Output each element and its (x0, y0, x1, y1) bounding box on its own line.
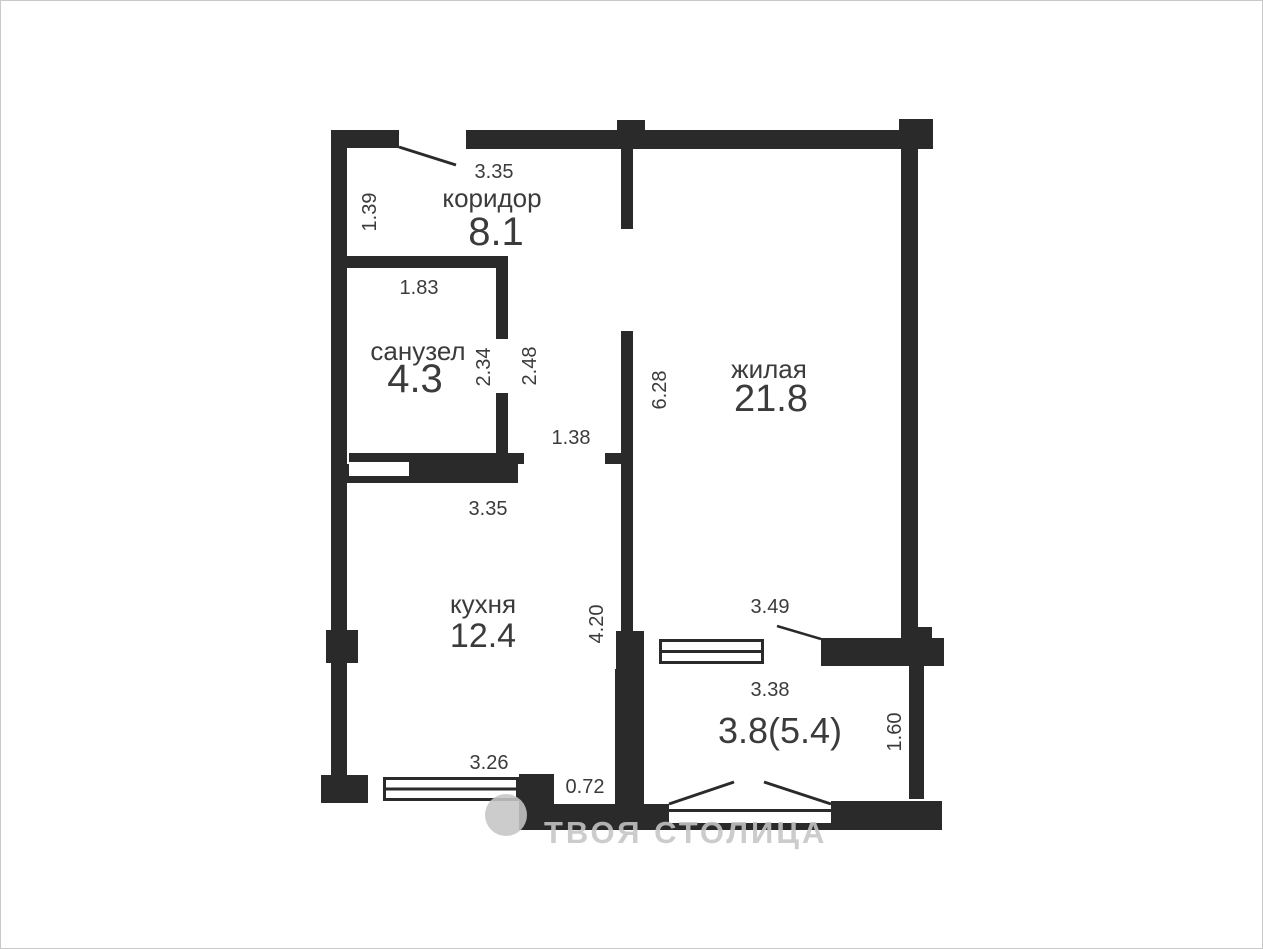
floor-plan-canvas: коридор 8.1 санузел 4.3 жилая 21.8 кухня… (0, 0, 1263, 949)
dim-opening-width: 1.38 (552, 428, 591, 448)
dim-corridor-width: 3.35 (475, 162, 514, 182)
dim-living-width: 3.49 (751, 597, 790, 617)
dim-balcony-door-width: 0.72 (566, 777, 605, 797)
room-area-balcony: 3.8(5.4) (718, 713, 842, 749)
room-name-corridor: коридор (442, 185, 541, 211)
dim-bathroom-height: 2.34 (474, 348, 494, 387)
dim-kitchen-width: 3.35 (469, 499, 508, 519)
room-area-corridor: 8.1 (468, 212, 524, 252)
dim-corridor-height: 1.39 (360, 193, 380, 232)
room-area-bathroom: 4.3 (387, 359, 443, 399)
dim-kitchen-window-width: 3.26 (470, 753, 509, 773)
dim-balcony-width: 3.38 (751, 680, 790, 700)
dim-living-height: 6.28 (650, 371, 670, 410)
label-layer: коридор 8.1 санузел 4.3 жилая 21.8 кухня… (1, 1, 1262, 948)
watermark-logo-icon (485, 794, 527, 836)
watermark-text: ТВОЯ СТОЛИЦА (544, 815, 827, 851)
room-name-kitchen: кухня (450, 591, 516, 617)
dim-bathroom-width: 1.83 (400, 278, 439, 298)
dim-kitchen-height: 4.20 (587, 605, 607, 644)
room-area-living: 21.8 (734, 380, 808, 418)
room-area-kitchen: 12.4 (450, 619, 516, 653)
dim-balcony-height: 1.60 (885, 713, 905, 752)
dim-corridor-strip-height: 2.48 (520, 347, 540, 386)
